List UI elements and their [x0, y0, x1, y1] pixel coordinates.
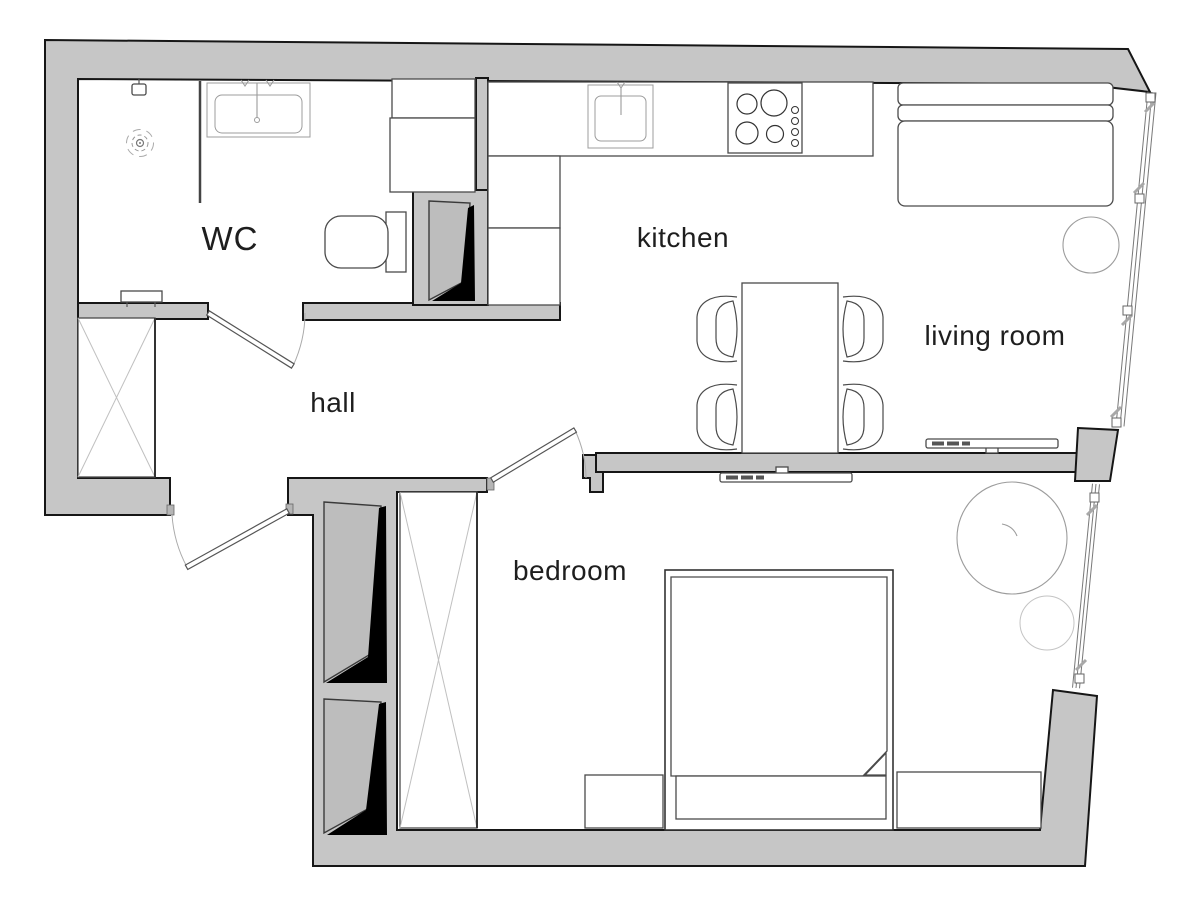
room-hall	[78, 318, 155, 477]
bedroom-door	[487, 428, 586, 490]
floor-plan-drawing: WC kitchen living room hall bedroom	[0, 0, 1200, 917]
floor-drain-icon	[127, 130, 154, 157]
bedroom-shaft-panels	[324, 502, 387, 835]
bedroom-wardrobe	[400, 492, 477, 828]
wc-door	[207, 311, 305, 368]
dining-chair	[843, 384, 883, 450]
window-segment-upper	[1111, 92, 1156, 427]
entrance-door	[167, 504, 293, 569]
label-kitchen: kitchen	[637, 222, 729, 253]
dining-set	[697, 283, 883, 453]
wc-cabinets	[390, 79, 475, 192]
room-bedroom	[324, 467, 1074, 835]
bedside-bench-left	[585, 775, 663, 828]
bedside-bench-right	[897, 772, 1041, 828]
pouf	[1020, 596, 1074, 650]
window-segment-lower	[1073, 484, 1100, 689]
wall-wc-kitchen-divider	[476, 78, 488, 192]
toilet	[325, 212, 406, 272]
label-hall: hall	[310, 387, 356, 418]
bed	[665, 570, 893, 830]
window-mullion	[1075, 674, 1084, 683]
wall-window-pier	[1075, 428, 1118, 481]
wall-bedroom-living-partition	[596, 453, 1078, 472]
side-table	[1063, 217, 1119, 273]
wall-wc-bottom-left	[78, 303, 208, 319]
window-mullion	[1090, 493, 1099, 502]
tv-living-room	[926, 439, 1058, 453]
shower-head-icon	[132, 79, 146, 95]
label-living-room: living room	[925, 320, 1066, 351]
floor-plan-page: WC kitchen living room hall bedroom	[0, 0, 1200, 917]
hall-wardrobe	[78, 318, 155, 477]
wall-hatch-icon	[1087, 505, 1097, 515]
kitchen-sink	[588, 82, 653, 148]
kitchen-cabinet	[488, 228, 560, 305]
wc-vanity-sink	[207, 80, 310, 137]
dining-table	[742, 283, 838, 453]
window-mullion	[1112, 418, 1121, 427]
label-bedroom: bedroom	[513, 555, 627, 586]
dining-chair	[697, 296, 737, 362]
window-mullion	[1135, 194, 1144, 203]
dining-chair	[697, 384, 737, 450]
room-kitchen	[488, 82, 873, 305]
kitchen-counter	[488, 82, 873, 156]
wall-hatch-icon	[1111, 407, 1121, 417]
label-wc: WC	[202, 220, 259, 257]
stove-cooktop	[728, 83, 802, 153]
sofa	[898, 83, 1113, 206]
window-mullion	[1123, 306, 1132, 315]
armchair	[957, 482, 1067, 594]
dining-chair	[843, 296, 883, 362]
wc-shaft-panel	[429, 201, 475, 301]
window-mullion	[1146, 93, 1155, 102]
kitchen-cabinet	[488, 156, 560, 228]
